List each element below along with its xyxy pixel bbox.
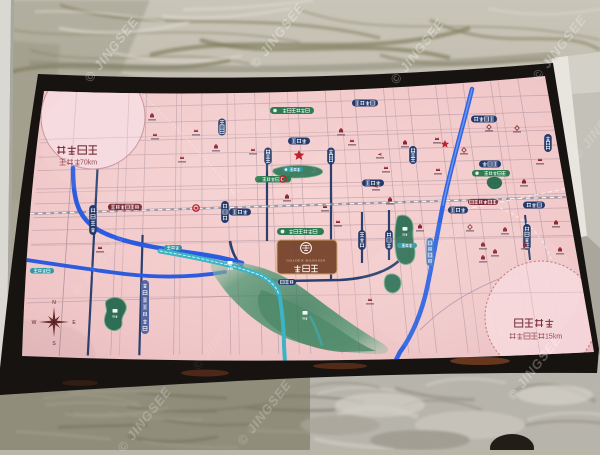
- svg-text:GOLDEN MANSION: GOLDEN MANSION: [286, 259, 325, 263]
- svg-text:N: N: [52, 300, 56, 306]
